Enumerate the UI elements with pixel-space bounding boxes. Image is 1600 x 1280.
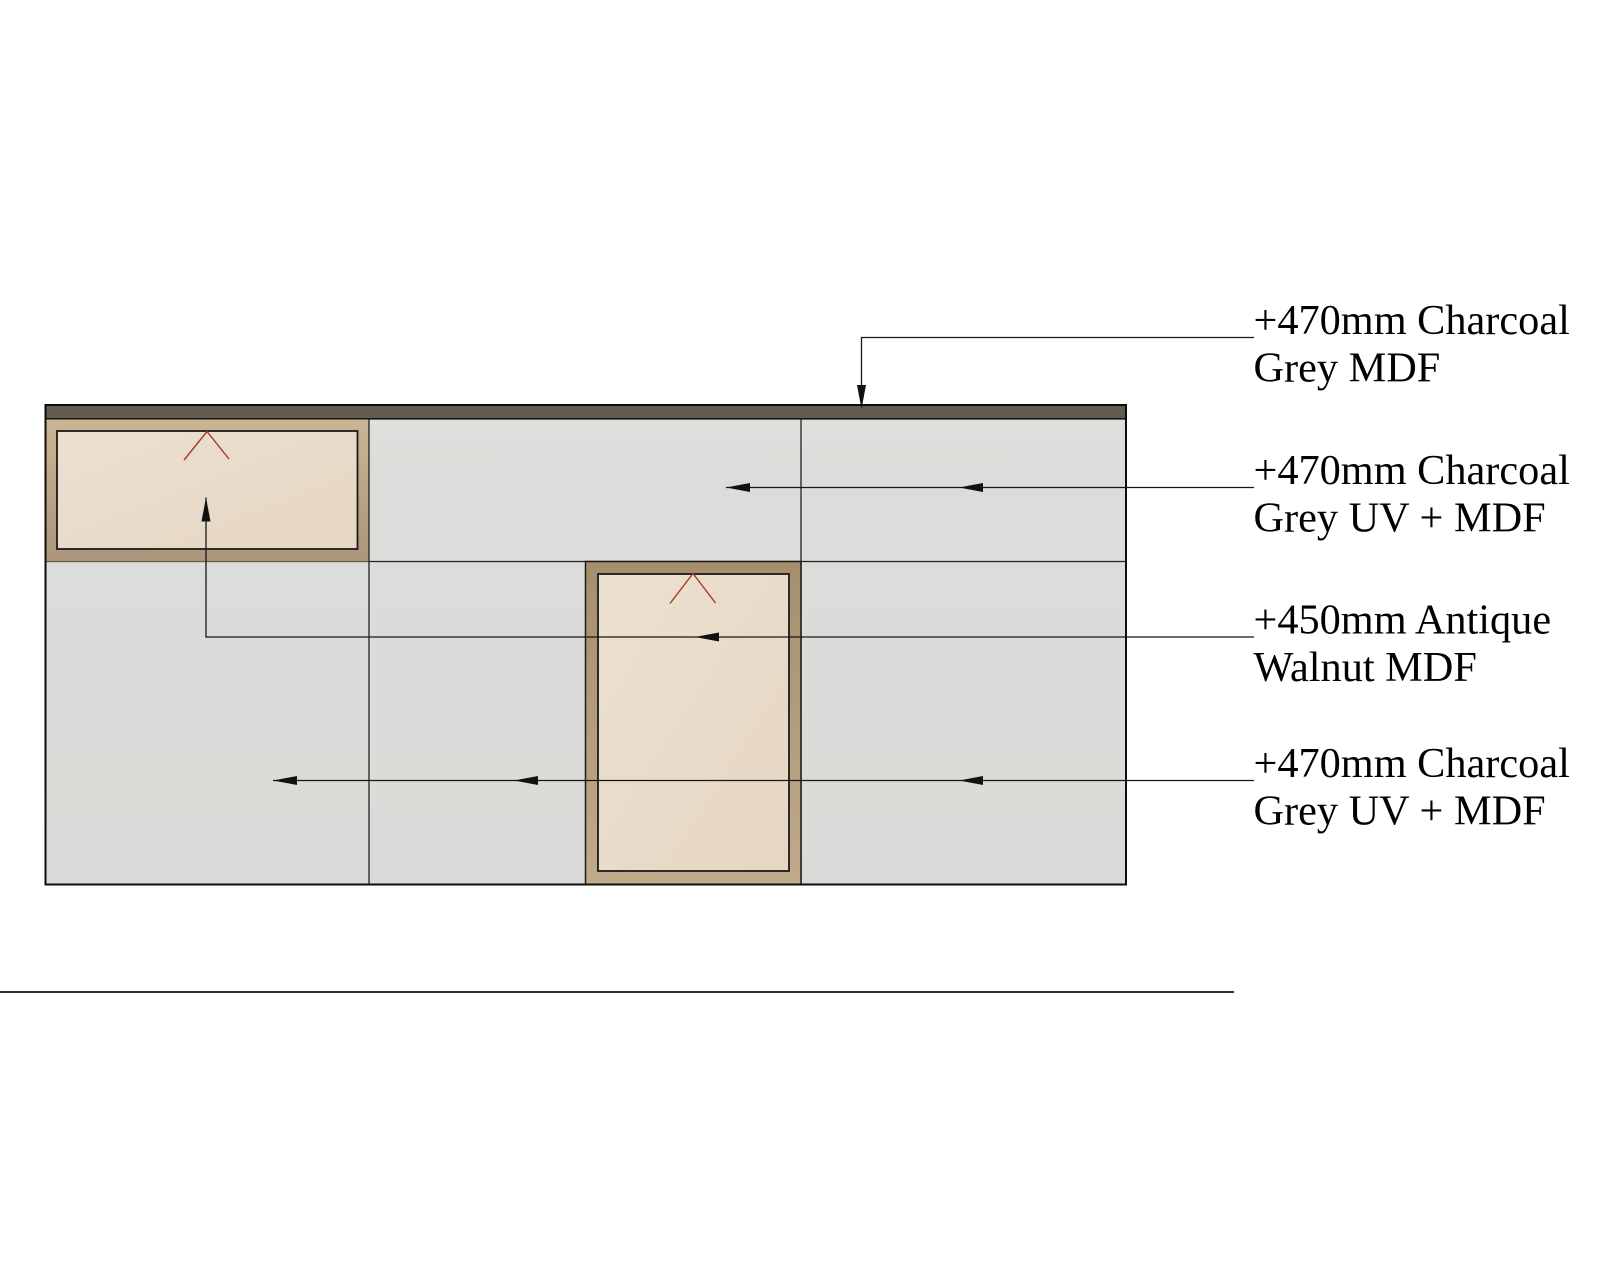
svg-text:Grey MDF: Grey MDF	[1254, 345, 1441, 392]
svg-text:+470mm Charcoal: +470mm Charcoal	[1254, 740, 1570, 787]
svg-text:+470mm Charcoal: +470mm Charcoal	[1254, 297, 1570, 344]
svg-text:Walnut MDF: Walnut MDF	[1254, 644, 1477, 691]
svg-text:Grey UV + MDF: Grey UV + MDF	[1254, 495, 1546, 542]
svg-text:Grey UV + MDF: Grey UV + MDF	[1254, 788, 1546, 835]
svg-text:+450mm Antique: +450mm Antique	[1254, 597, 1552, 644]
svg-text:+470mm Charcoal: +470mm Charcoal	[1254, 447, 1570, 494]
